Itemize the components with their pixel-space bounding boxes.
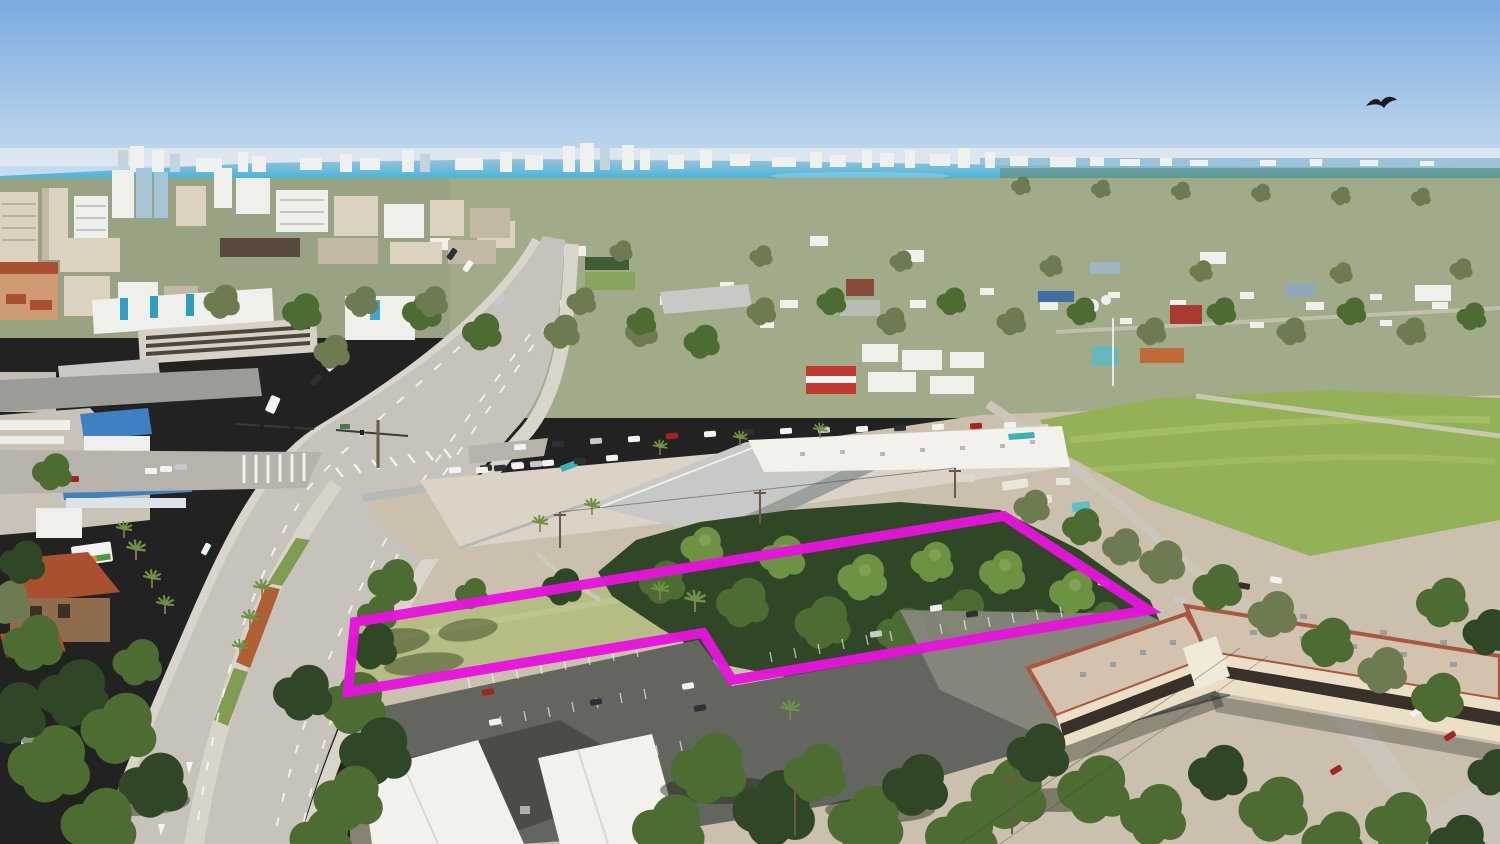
- aerial-photo: [0, 0, 1500, 844]
- bronze-office-building: [220, 238, 300, 257]
- red-white-building: [806, 366, 856, 394]
- red-barn: [1170, 305, 1202, 324]
- blue-railcar: [1038, 291, 1074, 302]
- salmon-courthouse: [0, 262, 58, 320]
- delivery-truck: [265, 395, 281, 415]
- aerial-photo-canvas: [0, 0, 1500, 844]
